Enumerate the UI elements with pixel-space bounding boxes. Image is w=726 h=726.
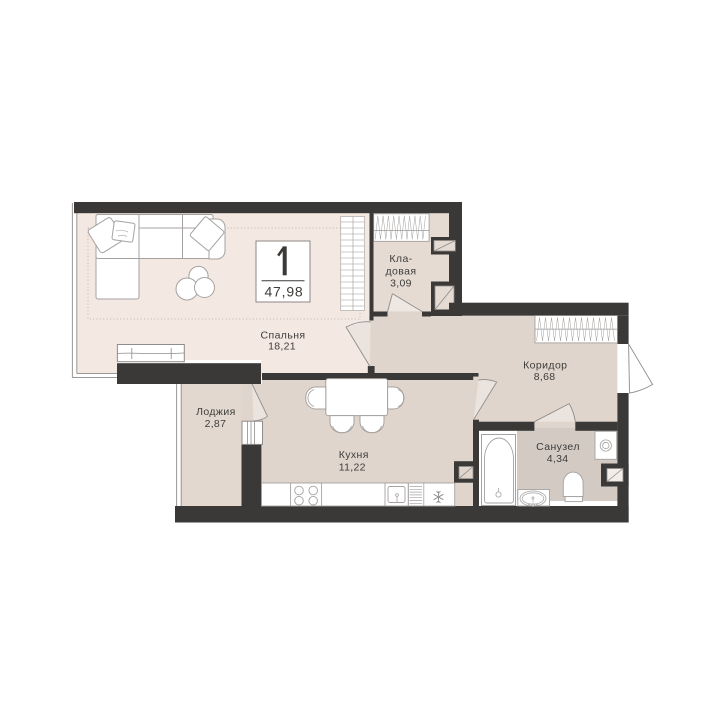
- svg-text:4,34: 4,34: [547, 453, 569, 465]
- svg-text:Кла-: Кла-: [389, 253, 412, 265]
- svg-text:Коридор: Коридор: [523, 360, 567, 372]
- svg-text:11,22: 11,22: [339, 462, 366, 474]
- svg-text:Лоджия: Лоджия: [196, 406, 236, 418]
- svg-text:довая: довая: [386, 266, 417, 278]
- svg-text:18,21: 18,21: [268, 340, 296, 352]
- svg-text:Кухня: Кухня: [339, 449, 369, 461]
- svg-text:2,87: 2,87: [205, 418, 227, 430]
- svg-text:8,68: 8,68: [534, 371, 556, 383]
- svg-text:47,98: 47,98: [264, 284, 303, 300]
- svg-text:Санузел: Санузел: [536, 441, 580, 453]
- svg-text:3,09: 3,09: [390, 278, 412, 290]
